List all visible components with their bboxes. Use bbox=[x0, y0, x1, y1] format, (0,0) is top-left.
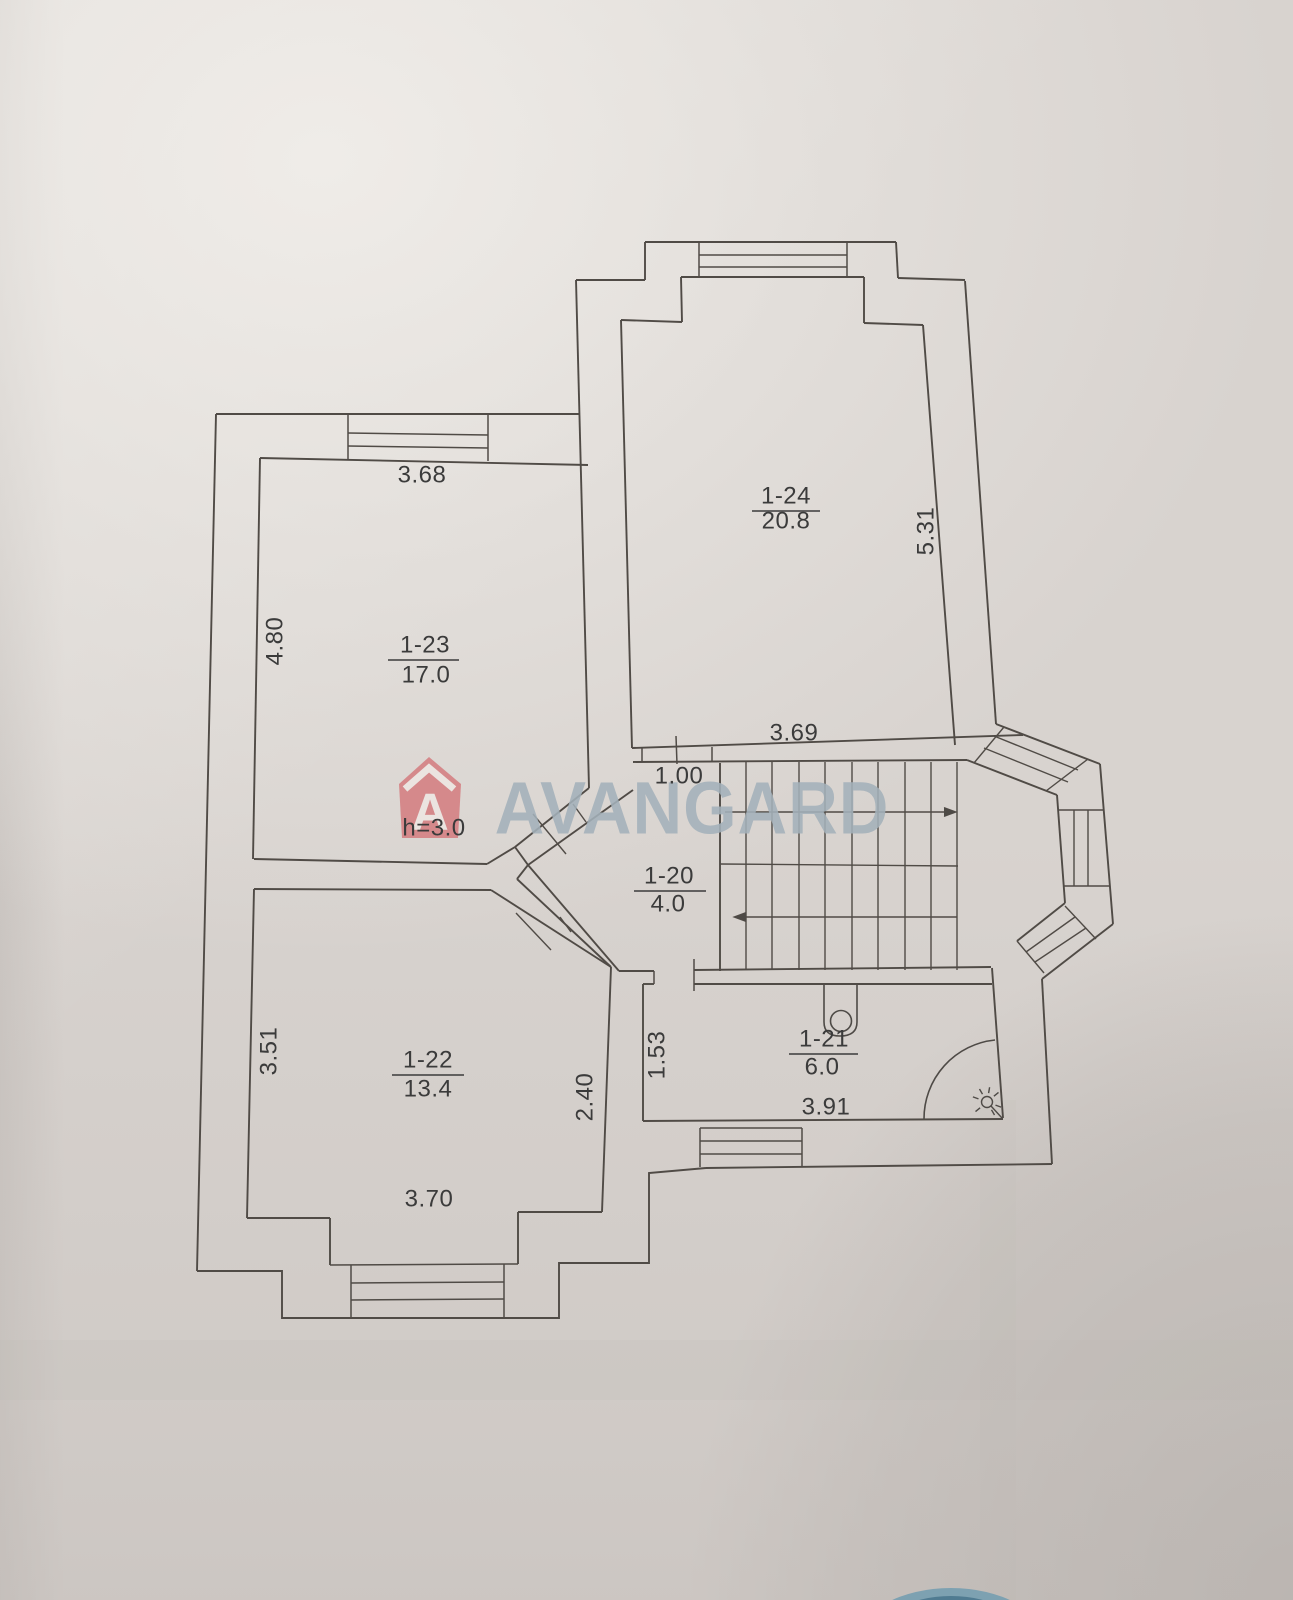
svg-text:3.68: 3.68 bbox=[398, 461, 447, 488]
svg-text:1-24: 1-24 bbox=[761, 482, 811, 509]
svg-text:4.0: 4.0 bbox=[651, 890, 686, 917]
svg-text:17.0: 17.0 bbox=[402, 661, 451, 688]
svg-text:1-21: 1-21 bbox=[799, 1025, 849, 1052]
svg-text:3.69: 3.69 bbox=[770, 719, 819, 746]
svg-text:20.8: 20.8 bbox=[762, 507, 811, 534]
svg-text:1-22: 1-22 bbox=[403, 1046, 453, 1073]
svg-text:2.40: 2.40 bbox=[571, 1073, 598, 1122]
svg-text:3.70: 3.70 bbox=[405, 1185, 454, 1212]
svg-text:h=3.0: h=3.0 bbox=[402, 814, 465, 841]
svg-text:1.00: 1.00 bbox=[655, 762, 704, 789]
svg-text:6.0: 6.0 bbox=[805, 1053, 840, 1080]
svg-text:1-23: 1-23 bbox=[400, 631, 450, 658]
svg-text:5.31: 5.31 bbox=[912, 507, 939, 556]
svg-text:1.53: 1.53 bbox=[643, 1031, 670, 1080]
svg-text:13.4: 13.4 bbox=[404, 1075, 453, 1102]
svg-text:4.80: 4.80 bbox=[261, 617, 288, 666]
svg-text:3.51: 3.51 bbox=[255, 1027, 282, 1076]
svg-text:1-20: 1-20 bbox=[644, 862, 694, 889]
svg-text:3.91: 3.91 bbox=[802, 1093, 851, 1120]
